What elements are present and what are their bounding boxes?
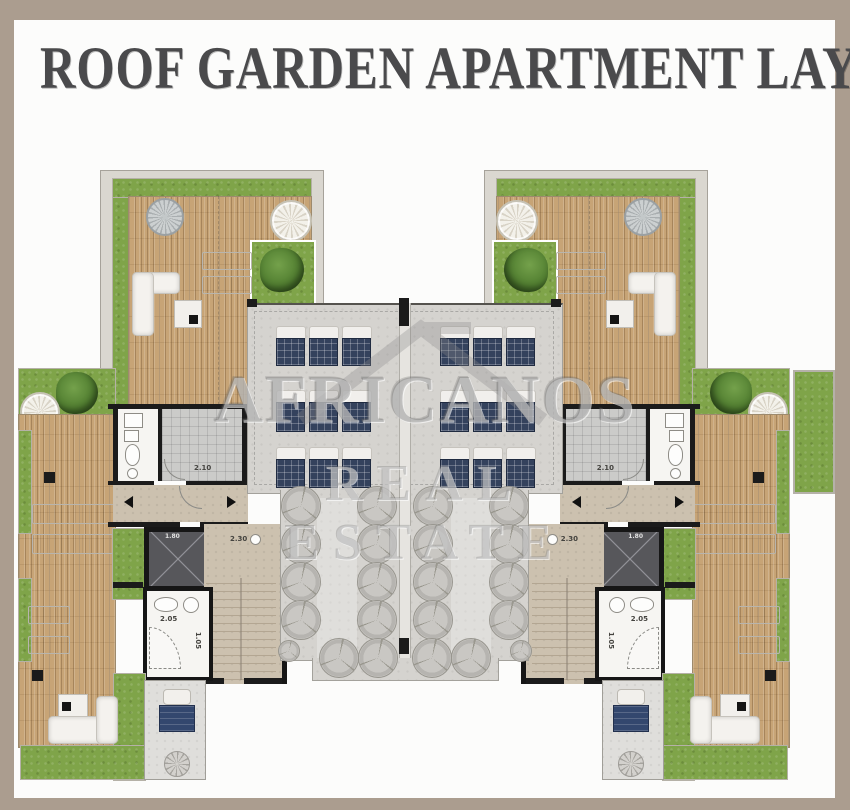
solar-panel-icon <box>342 402 371 432</box>
dimension-line <box>589 196 590 420</box>
pergola-post <box>753 472 764 483</box>
sofa-icon <box>132 272 154 336</box>
fixture-icon <box>547 534 558 545</box>
page-title: ROOF GARDEN APARTMENT LAYOUT <box>40 34 850 103</box>
floor-drain-icon <box>127 468 138 479</box>
solar-panel-icon <box>276 338 305 366</box>
sink-icon <box>609 597 625 613</box>
sink-icon <box>669 430 684 442</box>
bathroom: 2.05 1.05 <box>595 587 665 681</box>
solar-panel-icon <box>506 402 535 432</box>
bath-dimension-label: 2.05 <box>160 616 177 623</box>
vent-icon <box>281 600 321 640</box>
elevator: 1.80 <box>596 527 664 591</box>
vent-icon <box>358 638 398 678</box>
terrace-grass-border-top <box>496 178 696 198</box>
sofa-icon <box>690 696 712 744</box>
table-notch <box>62 702 71 711</box>
bathroom: 2.05 1.05 <box>143 587 213 681</box>
corridor <box>560 485 695 522</box>
vent-icon <box>281 486 321 526</box>
terrace-grass-border-top <box>112 178 312 198</box>
sun-lounger-icon <box>692 504 776 524</box>
solar-panel-icon <box>309 338 338 366</box>
patio <box>602 680 664 780</box>
wall <box>244 678 282 684</box>
framed-floor-plan: ROOF GARDEN APARTMENT LAYOUT <box>0 0 850 810</box>
vent-icon <box>489 562 529 602</box>
garden-grass-strip <box>20 745 146 780</box>
patio <box>144 680 206 780</box>
stairs <box>532 578 602 680</box>
solar-panel-icon <box>342 338 371 366</box>
tree-icon <box>504 248 548 292</box>
solar-panel-icon <box>440 459 469 488</box>
table-notch <box>737 702 746 711</box>
toilet-icon <box>154 597 178 612</box>
pergola-post <box>765 670 776 681</box>
parasol-icon <box>270 200 312 242</box>
edge-grass-strip <box>776 430 790 534</box>
side-garden-strip <box>793 370 835 494</box>
laundry-room <box>645 409 695 481</box>
solar-panel-icon <box>506 338 535 366</box>
sun-lounger-icon <box>28 606 70 624</box>
toilet-icon <box>668 444 683 466</box>
tree-icon <box>710 372 752 414</box>
door-swing-icon <box>164 459 185 480</box>
roof-walkway <box>451 498 491 658</box>
shower-icon <box>149 627 181 669</box>
interior-grass-patch <box>660 528 696 600</box>
room-dimension-label: 2.10 <box>597 465 614 472</box>
vent-icon <box>489 600 529 640</box>
bench-icon <box>617 689 645 705</box>
side-table-icon <box>606 300 634 328</box>
wall <box>526 678 564 684</box>
bath-dimension-label: 1.05 <box>194 632 201 649</box>
planter-icon <box>164 751 190 777</box>
dimension-line <box>218 196 219 420</box>
solar-panel-icon <box>473 402 502 432</box>
sun-lounger-icon <box>556 276 606 294</box>
vent-icon <box>357 486 397 526</box>
vent-icon <box>278 640 300 662</box>
sun-lounger-icon <box>738 606 780 624</box>
parasol-icon <box>496 200 538 242</box>
solar-panel-icon <box>506 459 535 488</box>
shower-icon <box>627 627 659 669</box>
vent-icon <box>510 640 532 662</box>
vent-icon <box>357 562 397 602</box>
vent-icon <box>413 562 453 602</box>
vent-icon <box>281 562 321 602</box>
sun-lounger-icon <box>692 534 776 554</box>
stair-dimension-label: 2.30 <box>561 536 578 543</box>
door-swing-icon <box>606 486 629 509</box>
entry-arrow-icon <box>227 496 242 508</box>
sun-lounger-icon <box>28 636 70 654</box>
floor-drain-icon <box>670 468 681 479</box>
bench-icon <box>163 689 191 705</box>
elevator: 1.80 <box>144 527 212 591</box>
washer-icon <box>124 413 143 428</box>
solar-panel-icon <box>440 338 469 366</box>
corridor <box>113 485 248 522</box>
solar-panel-icon <box>276 459 305 488</box>
elevator-dimension-label: 1.80 <box>628 534 643 540</box>
wall <box>551 299 561 307</box>
dining-table-icon <box>613 705 649 732</box>
washer-icon <box>665 413 684 428</box>
edge-grass-strip <box>18 430 32 534</box>
floor-plan: 2.10 1.80 2.30 <box>18 168 832 782</box>
vent-icon <box>412 638 452 678</box>
door-swing-icon <box>623 459 644 480</box>
sun-lounger-icon <box>556 252 606 270</box>
sun-lounger-icon <box>202 252 252 270</box>
shower-room: 2.10 <box>162 409 242 481</box>
stair-dimension-label: 2.30 <box>230 536 247 543</box>
bath-dimension-label: 1.05 <box>607 632 614 649</box>
garden-grass-strip <box>662 745 788 780</box>
entry-arrow-icon <box>566 496 581 508</box>
side-table-icon <box>174 300 202 328</box>
stair-hall: 2.30 <box>521 524 604 684</box>
room-dimension-label: 2.10 <box>194 465 211 472</box>
wall <box>247 299 257 307</box>
planter-icon <box>618 751 644 777</box>
solar-panel-icon <box>342 459 371 488</box>
pergola-post <box>32 670 43 681</box>
vent-icon <box>489 524 529 564</box>
vent-icon <box>489 486 529 526</box>
solar-panel-icon <box>440 402 469 432</box>
table-notch <box>610 315 619 324</box>
stairs <box>206 578 276 680</box>
solar-panel-icon <box>473 338 502 366</box>
sun-lounger-icon <box>202 276 252 294</box>
sink-icon <box>183 597 199 613</box>
sun-lounger-icon <box>32 504 116 524</box>
sofa-icon <box>654 272 676 336</box>
roof-walkway <box>317 498 357 658</box>
bath-dimension-label: 2.05 <box>631 616 648 623</box>
pergola-post <box>44 472 55 483</box>
solar-panel-icon <box>276 402 305 432</box>
vent-icon <box>357 524 397 564</box>
toilet-icon <box>125 444 140 466</box>
toilet-icon <box>630 597 654 612</box>
vent-icon <box>413 600 453 640</box>
wall <box>399 298 409 326</box>
wall <box>113 582 143 588</box>
wall <box>399 638 409 654</box>
skylight-icon <box>624 198 662 236</box>
entry-arrow-icon <box>675 496 690 508</box>
skylight-icon <box>146 198 184 236</box>
solar-panel-icon <box>309 459 338 488</box>
table-notch <box>189 315 198 324</box>
wall <box>646 409 650 481</box>
solar-panel-icon <box>473 459 502 488</box>
sun-lounger-icon <box>32 534 116 554</box>
sink-icon <box>124 430 139 442</box>
shower-room: 2.10 <box>566 409 646 481</box>
door-swing-icon <box>179 486 202 509</box>
stair-hall: 2.30 <box>204 524 287 684</box>
sofa-icon <box>96 696 118 744</box>
laundry-room <box>113 409 163 481</box>
vent-icon <box>413 486 453 526</box>
elevator-dimension-label: 1.80 <box>165 534 180 540</box>
vent-icon <box>413 524 453 564</box>
vent-icon <box>451 638 491 678</box>
party-wall-divider <box>399 303 411 658</box>
dining-table-icon <box>159 705 195 732</box>
vent-icon <box>319 638 359 678</box>
vent-icon <box>281 524 321 564</box>
page-title-text: ROOF GARDEN APARTMENT LAYOUT <box>40 34 850 103</box>
solar-panel-icon <box>309 402 338 432</box>
sun-lounger-icon <box>738 636 780 654</box>
fixture-icon <box>250 534 261 545</box>
entry-arrow-icon <box>118 496 133 508</box>
vent-icon <box>357 600 397 640</box>
wall <box>665 582 695 588</box>
